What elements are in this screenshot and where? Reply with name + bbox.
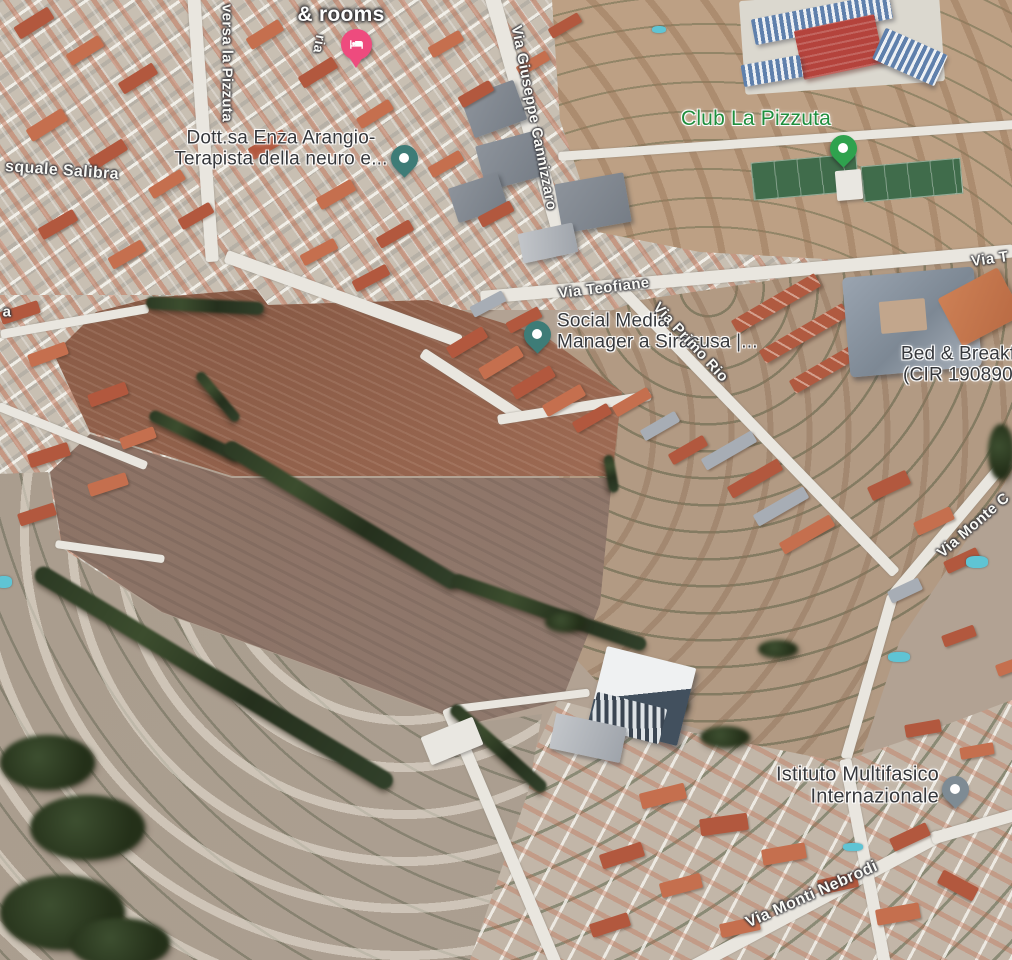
- poi-istituto-multifasico-line: Istituto Multifasico: [776, 764, 939, 786]
- swimming-pool: [966, 556, 988, 568]
- pin-dot-icon: [950, 784, 960, 794]
- poi-dott-enza-arangio-line: Terapista della neuro e...: [174, 149, 387, 170]
- tree-cluster: [0, 735, 95, 790]
- swimming-pool: [843, 843, 863, 851]
- bed-icon: [348, 36, 365, 53]
- building-roof: [941, 625, 977, 648]
- poi-bed-and-breakfast[interactable]: Bed & Breakf(CIR 190890: [901, 344, 1012, 387]
- street-ria: ria: [310, 34, 329, 55]
- tree-cluster: [30, 795, 145, 860]
- poi-club-la-pizzuta[interactable]: Club La Pizzuta: [681, 107, 831, 131]
- tree-cluster: [758, 640, 798, 658]
- tree-cluster: [70, 918, 170, 960]
- tree-cluster: [700, 726, 750, 748]
- satellite-map[interactable]: & roomsriaversa la Pizzutasquale Salibra…: [0, 0, 1012, 960]
- swimming-pool: [888, 652, 910, 662]
- building-roof: [995, 655, 1012, 677]
- poi-social-media-manager-line: Manager a Siracusa |...: [557, 332, 758, 353]
- tree-cluster: [988, 424, 1012, 480]
- poi-dott-enza-arangio[interactable]: Dott.sa Enza Arangio-Terapista della neu…: [174, 128, 387, 171]
- hotel-pin-tail: [349, 57, 363, 68]
- swimming-pool: [0, 576, 12, 588]
- street-traversa-la-pizzuta-line: versa la Pizzuta: [218, 4, 235, 122]
- pin-dot-icon: [399, 153, 409, 163]
- poi-dott-enza-arangio-line: Dott.sa Enza Arangio-: [174, 128, 387, 149]
- hotel-pin-circle: [341, 29, 372, 60]
- poi-bed-and-breakfast-line: (CIR 190890: [901, 365, 1012, 386]
- poi-istituto-multifasico-line: Internazionale: [776, 786, 939, 808]
- poi-bed-and-breakfast-line: Bed & Breakf: [901, 344, 1012, 365]
- tree-cluster: [545, 612, 585, 632]
- street-traversa-la-pizzuta: versa la Pizzuta: [218, 4, 235, 122]
- poi-istituto-multifasico[interactable]: Istituto MultifasicoInternazionale: [776, 764, 939, 809]
- pin-dot-icon: [532, 329, 542, 339]
- swimming-pool: [652, 26, 666, 33]
- building: [835, 169, 864, 201]
- poi-club-la-pizzuta-line: Club La Pizzuta: [681, 107, 831, 131]
- street-partial-a-line: a: [3, 305, 12, 322]
- hotel-rooms-label-line: & rooms: [297, 3, 384, 27]
- street-ria-line: ria: [310, 34, 329, 55]
- street-partial-a: a: [3, 305, 12, 322]
- pin-dot-icon: [838, 143, 848, 153]
- hotel-rooms-label[interactable]: & rooms: [297, 3, 384, 27]
- building: [879, 298, 928, 334]
